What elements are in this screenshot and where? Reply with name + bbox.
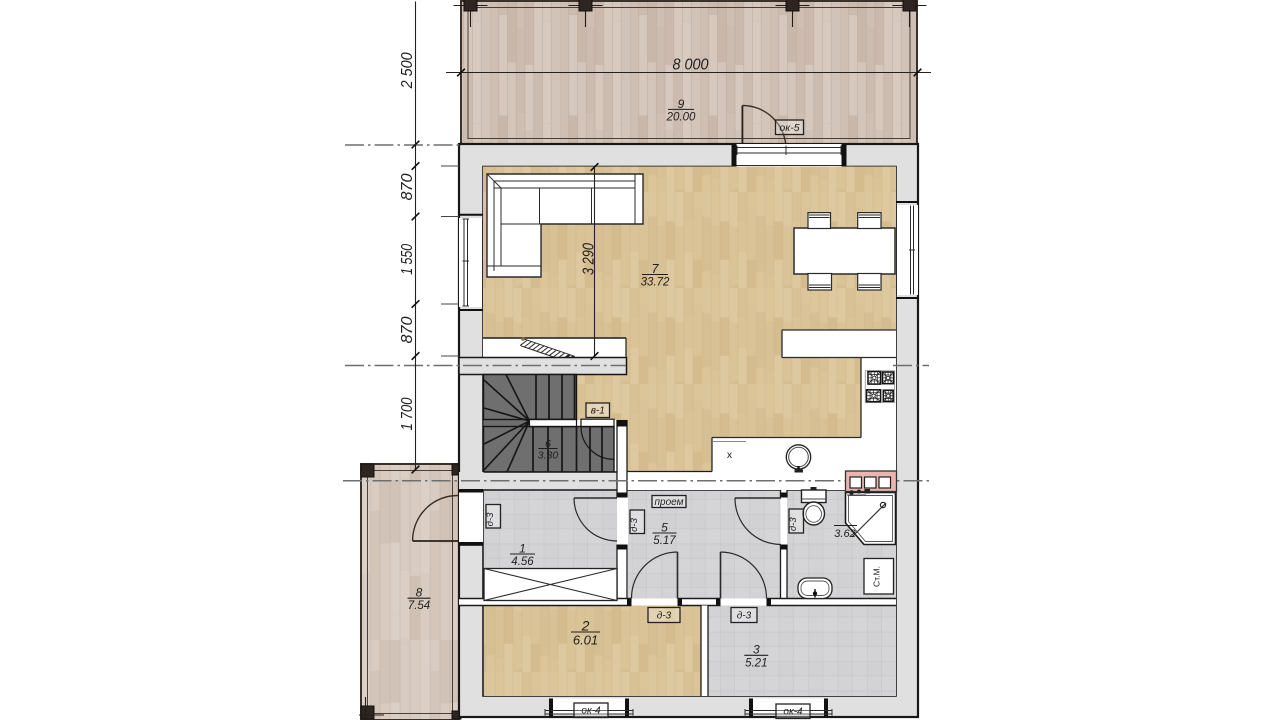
svg-text:870: 870 [399,316,416,343]
svg-text:5.17: 5.17 [653,535,676,547]
svg-text:x: x [727,449,733,461]
svg-text:ок-4: ок-4 [783,707,803,718]
svg-text:9: 9 [678,97,685,111]
svg-text:870: 870 [399,173,416,200]
svg-text:3.30: 3.30 [538,450,559,462]
svg-text:2 500: 2 500 [399,52,416,89]
svg-text:1 700: 1 700 [399,397,416,430]
svg-text:1 550: 1 550 [399,244,416,275]
svg-text:5: 5 [661,520,668,534]
svg-text:4.56: 4.56 [511,556,534,568]
svg-text:33.72: 33.72 [641,276,670,288]
svg-text:7: 7 [652,262,660,276]
svg-text:8: 8 [416,586,423,600]
svg-text:8 000: 8 000 [673,57,709,74]
svg-text:д-3: д-3 [737,610,752,621]
svg-text:20.00: 20.00 [666,111,696,123]
svg-text:2: 2 [581,617,590,633]
svg-text:д-3: д-3 [629,517,640,531]
svg-text:в-1: в-1 [591,406,605,417]
svg-text:д-3: д-3 [657,610,672,621]
svg-text:3.62: 3.62 [834,528,855,540]
svg-text:ок-4: ок-4 [581,706,601,717]
svg-text:1: 1 [519,541,526,555]
svg-text:6.01: 6.01 [573,632,598,647]
svg-text:3: 3 [753,643,760,657]
svg-text:5.21: 5.21 [745,657,767,669]
svg-text:д-3: д-3 [485,512,496,526]
svg-text:7.54: 7.54 [408,600,430,612]
svg-text:д-3: д-3 [788,517,799,531]
svg-text:ок-5: ок-5 [779,122,799,134]
svg-text:Ст.М.: Ст.М. [872,566,882,587]
svg-text:проем: проем [655,497,684,508]
svg-text:3 290: 3 290 [581,243,598,275]
